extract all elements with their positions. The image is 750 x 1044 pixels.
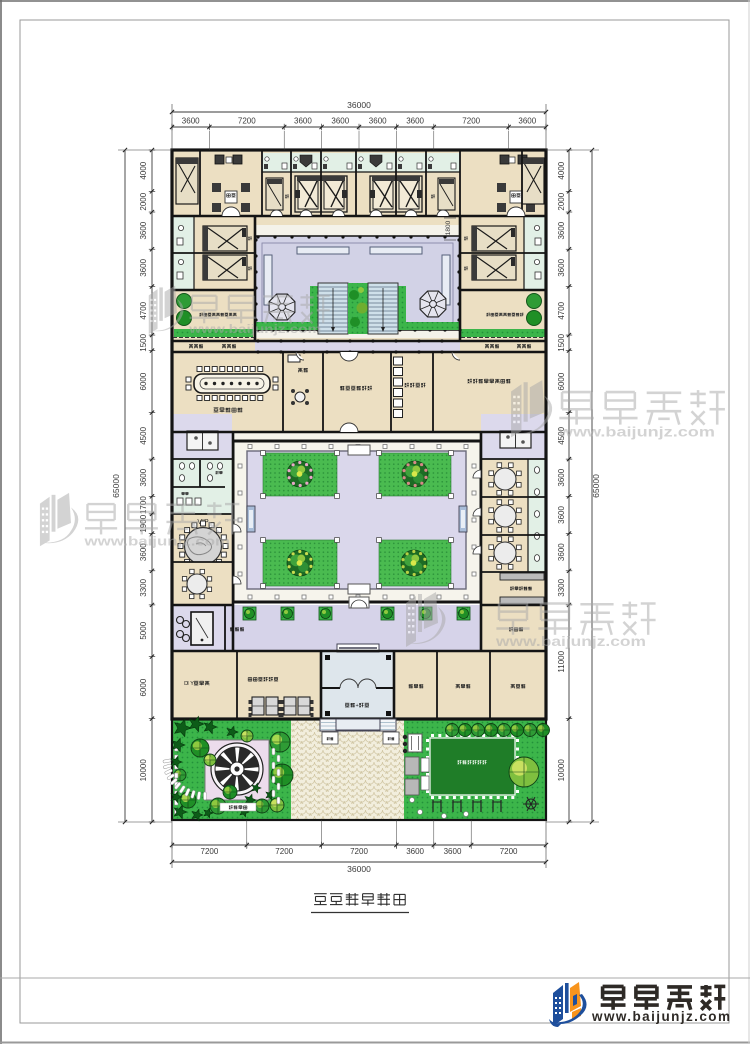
svg-text:3600: 3600: [557, 221, 566, 239]
svg-text:www.baijunjz.com: www.baijunjz.com: [558, 423, 715, 439]
svg-text:3600: 3600: [557, 468, 566, 486]
svg-text:www.baijunjz.com: www.baijunjz.com: [188, 322, 321, 336]
svg-text:5000: 5000: [139, 621, 148, 639]
svg-text:7200: 7200: [275, 847, 293, 856]
svg-text:36000: 36000: [347, 100, 371, 110]
svg-text:4000: 4000: [557, 161, 566, 179]
svg-text:4000: 4000: [139, 161, 148, 179]
svg-text:36000: 36000: [347, 864, 371, 874]
svg-text:65000: 65000: [591, 474, 601, 498]
svg-text:7200: 7200: [462, 117, 480, 126]
svg-text:+: +: [356, 703, 359, 709]
svg-text:3600: 3600: [139, 221, 148, 239]
svg-text:6000: 6000: [139, 372, 148, 390]
svg-text:7200: 7200: [238, 117, 256, 126]
svg-text:1800: 1800: [445, 220, 452, 235]
svg-text:Y: Y: [190, 681, 194, 687]
svg-text:3600: 3600: [406, 847, 424, 856]
svg-text:www.baijunjz.com: www.baijunjz.com: [83, 533, 230, 548]
svg-text:7200: 7200: [201, 847, 219, 856]
svg-text:www.baijunjz.com: www.baijunjz.com: [591, 1009, 730, 1024]
svg-text:3600: 3600: [139, 258, 148, 276]
svg-text:3300: 3300: [139, 578, 148, 596]
svg-text:3600: 3600: [182, 117, 200, 126]
svg-text:7200: 7200: [350, 847, 368, 856]
svg-text:10000: 10000: [139, 759, 148, 782]
svg-text:3600: 3600: [139, 468, 148, 486]
svg-text:3600: 3600: [294, 117, 312, 126]
svg-text:3600: 3600: [331, 117, 349, 126]
svg-text:6000: 6000: [557, 372, 566, 390]
svg-text:3600: 3600: [406, 117, 424, 126]
svg-text:7200: 7200: [500, 847, 518, 856]
svg-text:1500: 1500: [139, 333, 148, 351]
svg-text:2000: 2000: [557, 192, 566, 210]
svg-text:3600: 3600: [557, 505, 566, 523]
svg-text:11000: 11000: [557, 650, 566, 672]
svg-text:3600: 3600: [369, 117, 387, 126]
svg-text:65000: 65000: [111, 474, 121, 498]
svg-text:10000: 10000: [557, 759, 566, 782]
svg-text:1500: 1500: [557, 333, 566, 351]
svg-text:3600: 3600: [557, 543, 566, 561]
svg-text:4500: 4500: [139, 426, 148, 444]
svg-text:3300: 3300: [557, 578, 566, 596]
svg-text:www.baijunjz.com: www.baijunjz.com: [495, 634, 646, 649]
svg-text:4700: 4700: [557, 301, 566, 319]
svg-text:3600: 3600: [557, 258, 566, 276]
svg-text:1900: 1900: [139, 514, 148, 532]
svg-text:3600: 3600: [518, 117, 536, 126]
svg-text:2000: 2000: [139, 192, 148, 210]
svg-text:6000: 6000: [139, 678, 148, 696]
svg-text:4700: 4700: [139, 301, 148, 319]
svg-text:3600: 3600: [444, 847, 462, 856]
